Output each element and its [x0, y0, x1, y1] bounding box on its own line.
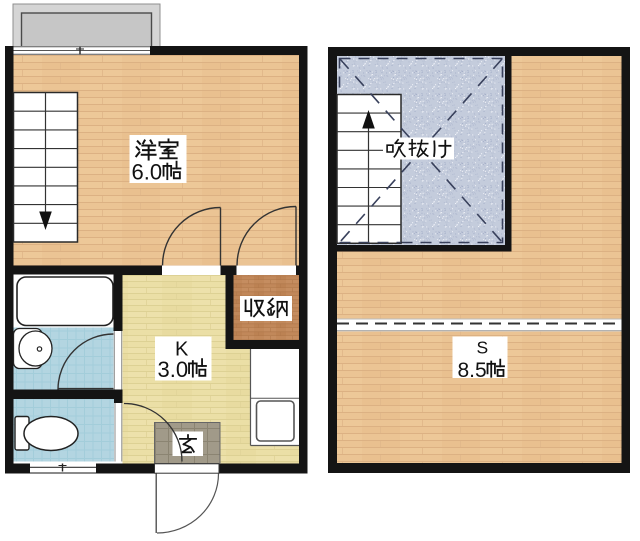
svg-text:S: S [477, 338, 489, 358]
svg-text:3.0: 3.0 [158, 357, 189, 382]
svg-text:6.0: 6.0 [132, 160, 163, 185]
svg-text:8.5: 8.5 [458, 359, 487, 382]
